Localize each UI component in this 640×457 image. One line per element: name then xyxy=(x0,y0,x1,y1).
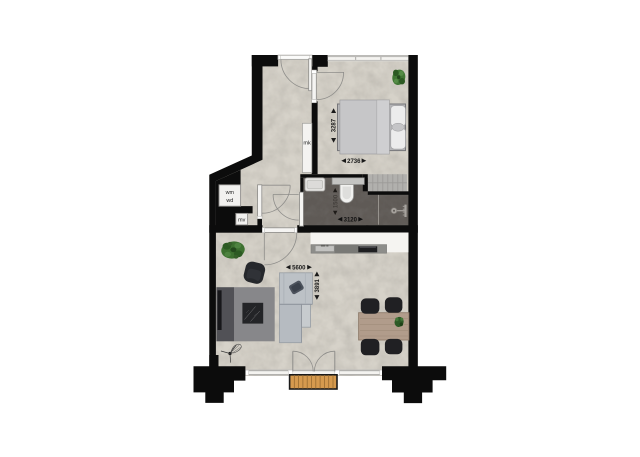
svg-text:mv: mv xyxy=(238,217,245,223)
svg-text:wd: wd xyxy=(225,198,233,204)
svg-text:mk: mk xyxy=(303,141,311,147)
svg-text:3287: 3287 xyxy=(332,118,338,132)
svg-text:wm: wm xyxy=(225,190,235,196)
svg-text:5600: 5600 xyxy=(292,265,306,271)
svg-text:3120: 3120 xyxy=(344,217,358,223)
svg-text:3891: 3891 xyxy=(315,278,321,292)
svg-text:2736: 2736 xyxy=(347,159,361,165)
svg-text:1500: 1500 xyxy=(333,194,339,208)
